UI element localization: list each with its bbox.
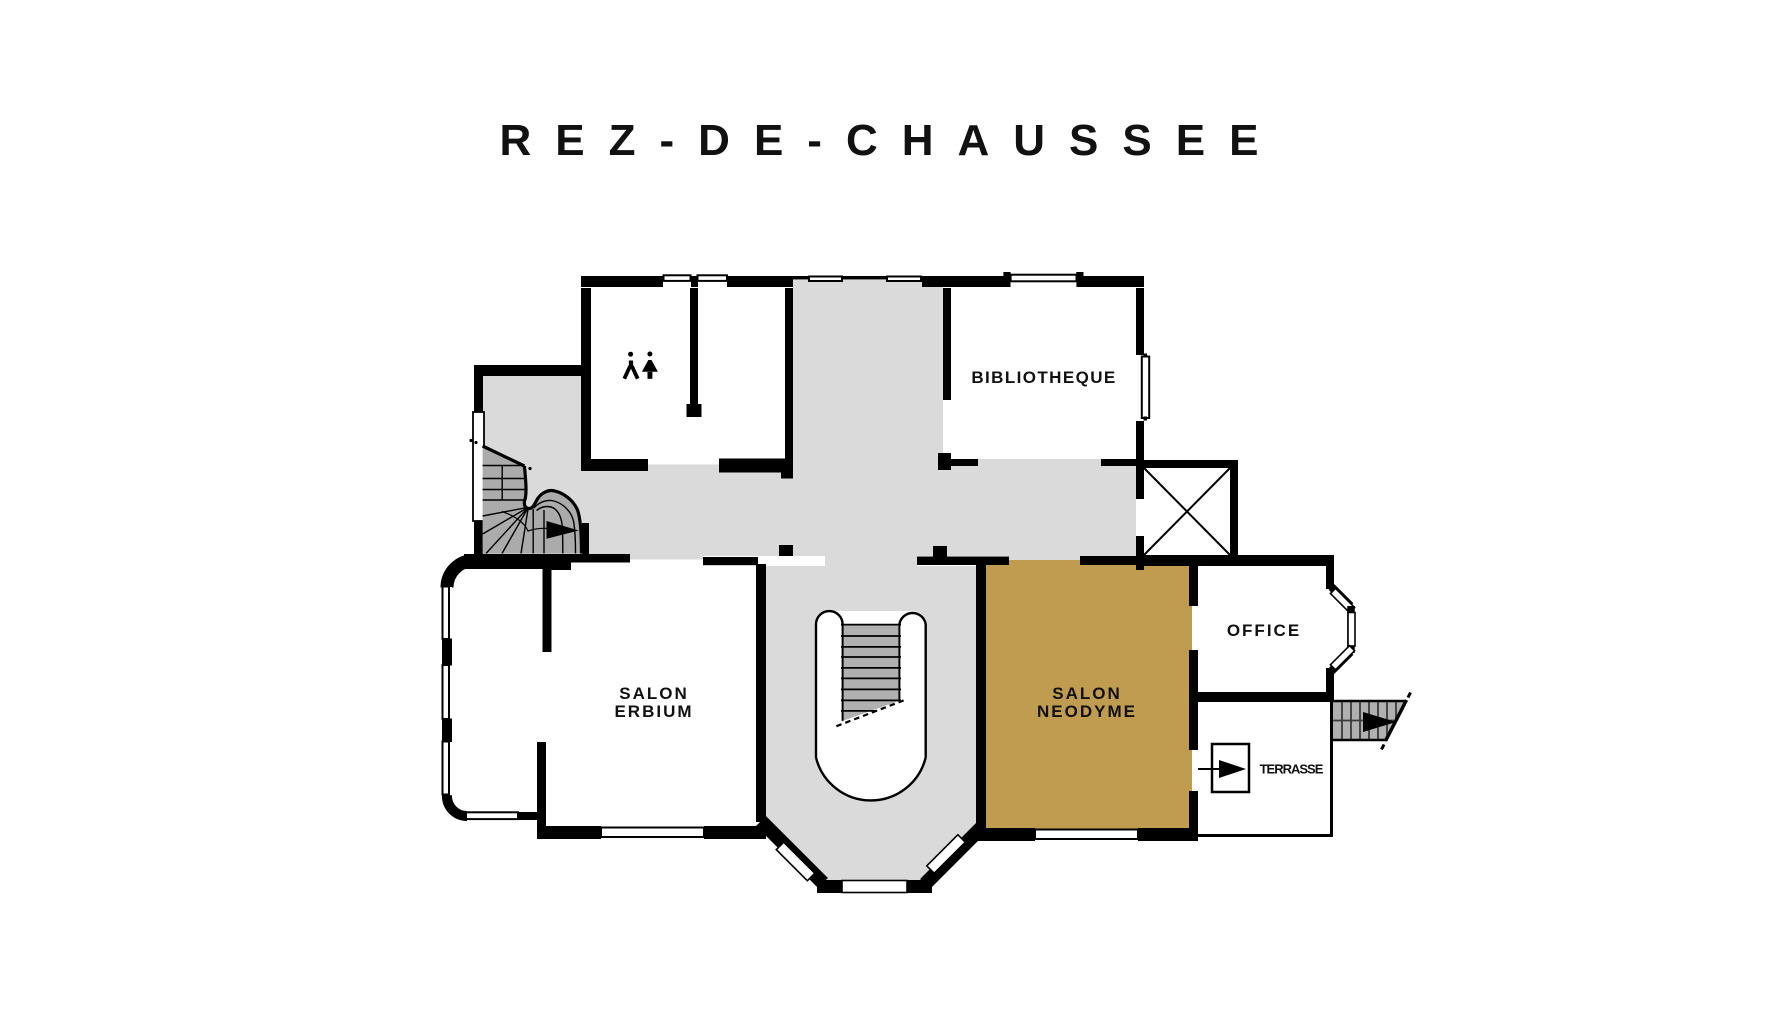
svg-text:SALON: SALON <box>1052 684 1122 703</box>
svg-text:BIBLIOTHEQUE: BIBLIOTHEQUE <box>971 368 1116 387</box>
svg-text:REZ-DE-CHAUSSEE: REZ-DE-CHAUSSEE <box>500 116 1283 165</box>
svg-text:TERRASSE: TERRASSE <box>1260 762 1324 777</box>
svg-text:ERBIUM: ERBIUM <box>614 702 693 721</box>
svg-text:OFFICE: OFFICE <box>1227 621 1301 640</box>
svg-text:NEODYME: NEODYME <box>1037 702 1137 721</box>
svg-text:SALON: SALON <box>619 684 689 703</box>
